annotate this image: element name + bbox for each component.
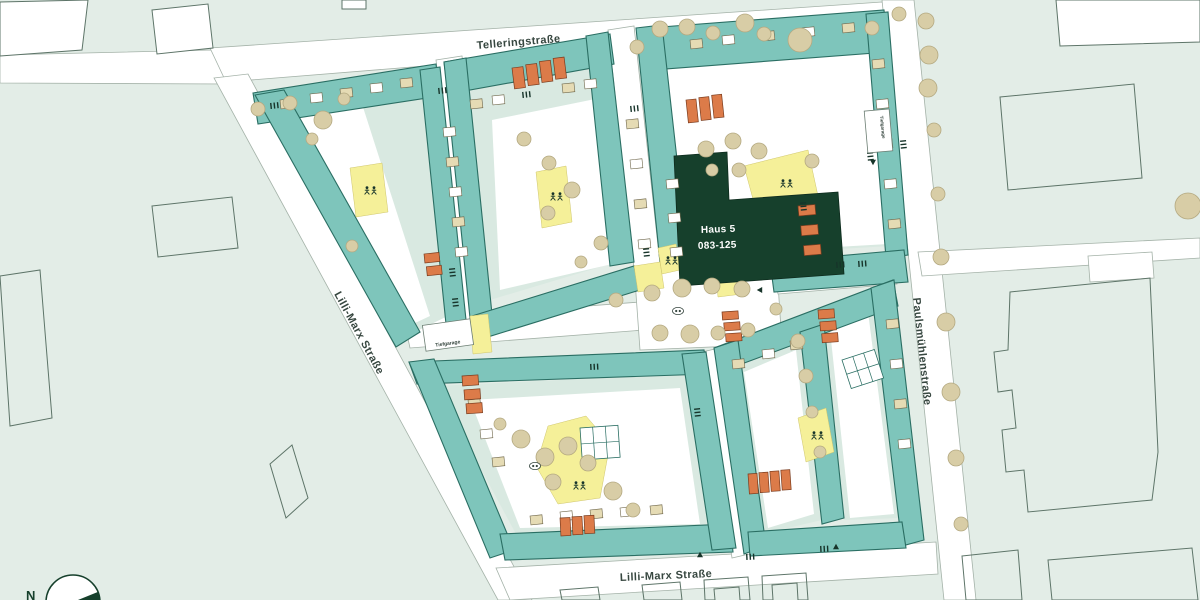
balcony-stripe	[803, 244, 821, 255]
facade-detail-box	[480, 429, 493, 439]
existing-building-top-tiny	[342, 0, 366, 9]
garage-box-east	[864, 109, 893, 153]
tree-icon	[937, 313, 955, 331]
path-east-notch	[1088, 252, 1154, 282]
bike-rack-icon	[746, 554, 755, 560]
balcony-stripe	[722, 311, 739, 320]
tree-icon	[652, 325, 668, 341]
existing-building-tr-corner	[1056, 0, 1200, 46]
balcony-stripe	[699, 97, 711, 121]
facade-detail-box	[370, 83, 383, 93]
facade-detail-box	[886, 319, 899, 329]
bike-rack-icon	[643, 248, 650, 257]
tree-icon	[942, 383, 960, 401]
tree-icon	[559, 437, 577, 455]
tree-icon	[512, 430, 530, 448]
balcony-stripe	[726, 333, 743, 342]
balcony-stripes	[560, 515, 595, 536]
tree-icon	[799, 369, 813, 383]
balcony-stripe	[512, 67, 525, 89]
tree-icon	[920, 46, 938, 64]
facade-detail-box	[732, 359, 745, 369]
tree-icon	[933, 249, 949, 265]
facade-detail-box	[470, 99, 483, 109]
balcony-stripe	[553, 57, 566, 79]
tree-icon	[734, 281, 750, 297]
tree-icon	[788, 28, 812, 52]
playground-figure-head	[373, 186, 376, 189]
playground-figure-head	[813, 431, 816, 434]
play-area-a2	[470, 314, 492, 354]
balcony-stripe	[748, 473, 758, 494]
facade-detail-box	[898, 439, 911, 449]
tree-icon	[865, 21, 879, 35]
facade-detail-box	[443, 127, 456, 137]
balcony-stripe	[724, 322, 741, 331]
tree-icon	[751, 143, 767, 159]
tree-icon	[704, 278, 720, 294]
tree-icon	[931, 187, 945, 201]
tree-icon	[580, 455, 596, 471]
tree-icon	[517, 132, 531, 146]
tree-icon	[770, 303, 782, 315]
facade-detail-box	[492, 95, 505, 105]
tree-icon	[630, 40, 644, 54]
balcony-stripe	[686, 99, 698, 123]
facade-detail-box	[455, 247, 468, 257]
tree-icon	[711, 326, 725, 340]
tree-icon	[542, 156, 556, 170]
tree-icon	[306, 133, 318, 145]
tree-icon	[954, 517, 968, 531]
playground-figure-head	[667, 256, 670, 259]
tree-icon	[346, 240, 358, 252]
balcony-stripe	[572, 516, 583, 534]
play-area-b	[536, 166, 572, 228]
tree-icon	[892, 7, 906, 21]
balcony-stripe	[801, 224, 819, 235]
site-plan-svg: Haus 5 083-125 Tiefgarage Tiefgarage Tel…	[0, 0, 1200, 600]
tree-icon	[679, 19, 695, 35]
tree-icon	[757, 27, 771, 41]
marker-dot	[532, 465, 534, 467]
bike-rack-icon	[900, 140, 907, 149]
tree-icon	[673, 279, 691, 297]
facade-detail-box	[650, 505, 663, 515]
tree-icon	[706, 164, 718, 176]
playground-figure-head	[552, 192, 555, 195]
balcony-stripe	[712, 94, 724, 118]
balcony-stripe	[820, 321, 837, 331]
marker-dot	[679, 310, 681, 312]
facade-detail-box	[446, 157, 459, 167]
facade-detail-box	[449, 187, 462, 197]
facade-detail-box	[722, 35, 735, 45]
facade-detail-box	[400, 78, 413, 88]
facade-detail-box	[842, 23, 855, 33]
tree-icon	[652, 21, 668, 37]
tree-icon	[927, 123, 941, 137]
bike-rack-icon	[800, 202, 807, 211]
tree-icon	[283, 96, 297, 110]
facade-detail-box	[562, 83, 575, 93]
pergola-grid	[580, 425, 620, 460]
bike-rack-icon	[820, 546, 829, 552]
facade-detail-box	[670, 247, 683, 257]
facade-detail-box	[492, 457, 505, 467]
tree-icon	[791, 334, 805, 348]
facade-detail-box	[630, 159, 643, 169]
facade-detail-box	[890, 359, 903, 369]
balcony-stripe	[759, 472, 769, 493]
tree-icon	[806, 406, 818, 418]
tree-icon	[594, 236, 608, 250]
balcony-stripe	[560, 517, 571, 535]
balcony-stripe	[426, 265, 442, 276]
facade-detail-box	[666, 179, 679, 189]
tree-icon	[314, 111, 332, 129]
bike-rack-icon	[858, 260, 867, 267]
balcony-stripe	[466, 403, 483, 414]
bike-rack-icon	[836, 261, 845, 268]
street-west-band	[0, 50, 228, 84]
balcony-stripe	[781, 470, 791, 491]
tree-icon	[736, 14, 754, 32]
tree-icon	[644, 285, 660, 301]
balcony-stripe	[822, 333, 839, 343]
playground-figure-head	[366, 186, 369, 189]
playground-figure-head	[582, 481, 585, 484]
tree-icon	[251, 102, 265, 116]
haus5-number-label: 083-125	[698, 240, 737, 252]
facade-detail-box	[310, 93, 323, 103]
marker-oval	[673, 307, 684, 314]
playground-figure-head	[789, 179, 792, 182]
facade-detail-box	[884, 179, 897, 189]
playground-figure-head	[782, 179, 785, 182]
tree-icon	[338, 93, 350, 105]
facade-detail-box	[690, 39, 703, 49]
facade-detail-box	[638, 239, 651, 249]
bike-parking-marker	[530, 462, 541, 469]
facade-detail-box	[530, 515, 543, 525]
facade-detail-box	[872, 59, 885, 69]
balcony-stripe	[464, 389, 481, 400]
tree-icon	[918, 13, 934, 29]
tree-icon	[564, 182, 580, 198]
tree-icon	[732, 163, 746, 177]
balcony-stripe	[770, 471, 780, 492]
balcony-stripe	[539, 60, 552, 82]
compass-north-label: N	[26, 588, 35, 600]
balcony-stripe	[818, 309, 835, 319]
tree-icon	[725, 133, 741, 149]
tree-icon	[1175, 193, 1200, 219]
tree-icon	[541, 206, 555, 220]
marker-oval	[530, 462, 541, 469]
tree-icon	[609, 293, 623, 307]
bike-rack-icon	[694, 408, 701, 417]
playground-figure-head	[559, 192, 562, 195]
bike-rack-icon	[270, 102, 279, 109]
tree-icon	[814, 446, 826, 458]
facade-detail-box	[626, 119, 639, 129]
tree-icon	[805, 154, 819, 168]
haus5-name-label: Haus 5	[701, 224, 736, 236]
marker-dot	[675, 310, 677, 312]
facade-detail-box	[634, 199, 647, 209]
tree-icon	[919, 79, 937, 97]
marker-dot	[536, 465, 538, 467]
bike-rack-icon	[522, 91, 531, 98]
bike-rack-icon	[449, 268, 456, 277]
tree-icon	[948, 450, 964, 466]
bike-rack-icon	[630, 105, 639, 112]
facade-detail-box	[876, 99, 889, 109]
bike-rack-icon	[438, 87, 447, 94]
facade-detail-box	[894, 399, 907, 409]
tree-icon	[626, 503, 640, 517]
facade-detail-box	[668, 213, 681, 223]
balcony-stripe	[526, 63, 539, 85]
tree-icon	[494, 418, 506, 430]
site-plan-map: Haus 5 083-125 Tiefgarage Tiefgarage Tel…	[0, 0, 1200, 600]
existing-building-tl-small	[152, 4, 213, 54]
playground-figure-head	[575, 481, 578, 484]
tree-icon	[545, 474, 561, 490]
tree-icon	[575, 256, 587, 268]
bike-rack-icon	[452, 298, 459, 307]
tree-icon	[604, 482, 622, 500]
bike-parking-marker	[673, 307, 684, 314]
balcony-stripe	[584, 515, 595, 533]
tree-icon	[681, 325, 699, 343]
garage-marker-east: Tiefgarage	[864, 109, 893, 153]
facade-detail-box	[452, 217, 465, 227]
facade-detail-box	[584, 79, 597, 89]
facade-detail-box	[888, 219, 901, 229]
playground-figure-head	[674, 256, 677, 259]
bike-rack-icon	[590, 364, 599, 370]
playground-figure-head	[820, 431, 823, 434]
balcony-stripe	[424, 252, 440, 263]
tree-icon	[741, 323, 755, 337]
existing-building-tl-corner	[0, 0, 88, 56]
tree-icon	[698, 141, 714, 157]
tree-icon	[706, 26, 720, 40]
facade-detail-box	[762, 349, 775, 359]
balcony-stripe	[462, 375, 479, 386]
